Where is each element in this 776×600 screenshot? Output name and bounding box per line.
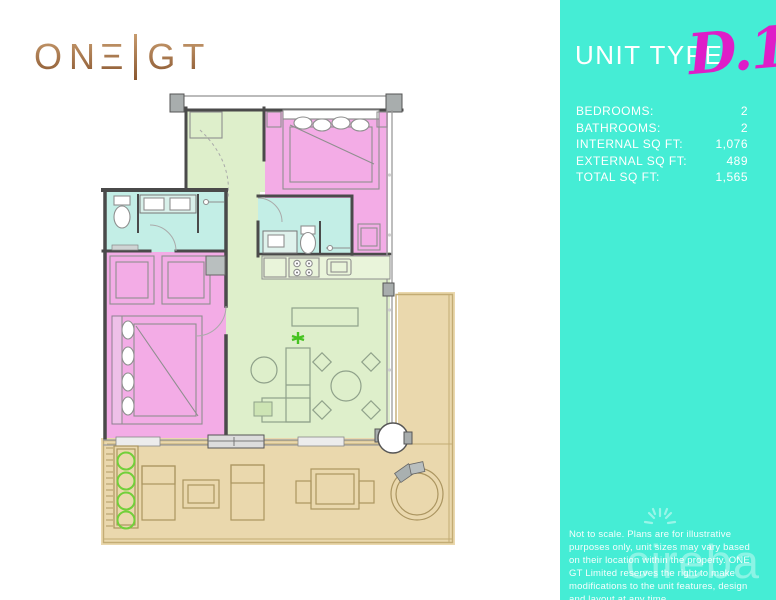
spec-label: TOTAL SQ FT: bbox=[576, 169, 660, 186]
spec-label: BEDROOMS: bbox=[576, 103, 654, 120]
toilet-icon bbox=[114, 206, 130, 228]
toilet-icon bbox=[301, 233, 316, 254]
spec-label: EXTERNAL SQ FT: bbox=[576, 153, 687, 170]
spec-row-external-sqft: EXTERNAL SQ FT: 489 bbox=[576, 153, 748, 170]
window-frame bbox=[116, 437, 160, 446]
logo-text-gt: GT bbox=[147, 36, 211, 78]
spec-row-total-sqft: TOTAL SQ FT: 1,565 bbox=[576, 169, 748, 186]
spec-label: BATHROOMS: bbox=[576, 120, 661, 137]
window-frame bbox=[298, 437, 344, 446]
spec-label: INTERNAL SQ FT: bbox=[576, 136, 683, 153]
spec-value: 1,565 bbox=[715, 169, 748, 186]
brand-logo: ON Ξ GT bbox=[34, 34, 211, 80]
spec-row-bedrooms: BEDROOMS: 2 bbox=[576, 103, 748, 120]
logo-text-on: ON bbox=[34, 36, 102, 78]
sidebar-panel: UNIT TYPE D.1 BEDROOMS: 2 BATHROOMS: 2 I… bbox=[560, 0, 776, 600]
spec-value: 1,076 bbox=[715, 136, 748, 153]
spec-value: 2 bbox=[741, 120, 748, 137]
spec-row-internal-sqft: INTERNAL SQ FT: 1,076 bbox=[576, 136, 748, 153]
spec-row-bathrooms: BATHROOMS: 2 bbox=[576, 120, 748, 137]
spec-value: 2 bbox=[741, 103, 748, 120]
logo-divider-bar bbox=[134, 34, 137, 80]
logo-e-bars-icon: Ξ bbox=[100, 36, 130, 78]
disclaimer-text: Not to scale. Plans are for illustrative… bbox=[569, 528, 755, 600]
brochure-page: ON Ξ GT bbox=[0, 0, 776, 600]
entry-hall bbox=[187, 108, 265, 192]
hallway bbox=[226, 190, 260, 258]
living-dining-area bbox=[226, 252, 390, 438]
spec-value: 489 bbox=[726, 153, 748, 170]
spec-table: BEDROOMS: 2 BATHROOMS: 2 INTERNAL SQ FT:… bbox=[576, 103, 748, 186]
floor-plan-diagram bbox=[95, 85, 461, 565]
unit-code: D.1 bbox=[685, 14, 776, 88]
